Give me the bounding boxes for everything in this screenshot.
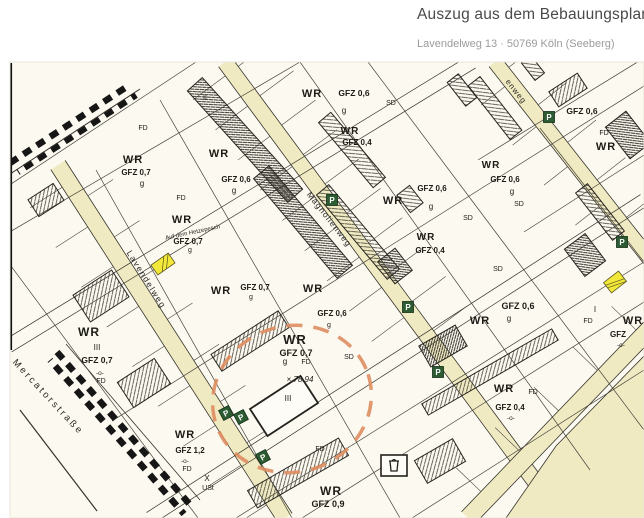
map-label: SD xyxy=(344,354,354,361)
map-label: GFZ 0,6 xyxy=(417,184,447,193)
map-label: GFZ 0,7 xyxy=(81,355,112,365)
map-label: GFZ 0,4 xyxy=(495,403,525,412)
map-label: GFZ 0,6 xyxy=(490,175,520,184)
map-label: -o- xyxy=(617,342,625,349)
map-label: SD xyxy=(386,100,396,107)
map-label: WR xyxy=(175,429,195,441)
map-label: GFZ 1,2 xyxy=(175,446,205,455)
map-label: FD xyxy=(96,378,105,385)
map-label: WR xyxy=(494,383,514,395)
map-label: WR xyxy=(172,214,192,226)
map-label: SD xyxy=(514,201,524,208)
map-label: WR xyxy=(283,332,307,347)
map-label: WR xyxy=(123,154,143,166)
map-label: USt xyxy=(202,485,214,492)
map-label: GFZ 0,4 xyxy=(415,246,445,255)
bebauungsplan-map: PPPPPPPP WRGFZ 0,7gFDIIWRGFZ 0,6gWRGFZ 0… xyxy=(0,0,644,518)
map-label: -o- xyxy=(181,458,189,465)
map-label: GFZ 0,7 xyxy=(173,237,203,246)
container-symbol xyxy=(381,455,407,476)
map-label: SD xyxy=(463,215,473,222)
map-label: g xyxy=(327,322,331,329)
map-label: WR xyxy=(211,285,231,297)
map-label: GFZ 0,6 xyxy=(501,301,534,311)
map-label: I xyxy=(594,305,596,314)
map-label: II xyxy=(203,95,207,102)
parking-symbol: P xyxy=(327,195,338,206)
map-label: III xyxy=(94,343,101,352)
map-label: GFZ 0,4 xyxy=(342,138,372,147)
map-label: WR xyxy=(78,325,100,339)
map-label: g xyxy=(232,186,236,195)
parking-symbol: P xyxy=(403,302,414,313)
map-label: WR xyxy=(341,126,360,137)
parking-symbol: P xyxy=(433,367,444,378)
map-label: FD xyxy=(315,446,324,453)
map-label: X xyxy=(204,474,210,483)
map-label: g xyxy=(140,179,144,188)
map-label: GFZ 0,6 xyxy=(566,106,597,116)
map-label: FD xyxy=(599,130,608,137)
map-label: III xyxy=(285,394,292,403)
map-label: × 78.94 xyxy=(287,375,314,384)
map-label: GFZ xyxy=(610,330,626,339)
map-label: GFZ 0,6 xyxy=(317,309,347,318)
map-label: g xyxy=(249,294,253,301)
parking-letter: P xyxy=(405,303,411,312)
parking-symbol: P xyxy=(617,237,628,248)
map-label: GFZ 0,9 xyxy=(311,499,344,509)
map-label: WR xyxy=(303,283,323,295)
map-label: g xyxy=(429,202,433,211)
map-label: GFZ 0,7 xyxy=(240,283,270,292)
parking-symbol: P xyxy=(544,112,555,123)
map-label: SD xyxy=(493,266,503,273)
map-label: WR xyxy=(383,195,403,207)
map-label: GFZ 0,6 xyxy=(221,175,251,184)
map-label: WR xyxy=(470,315,490,327)
map-label: FD xyxy=(301,359,310,366)
map-label: WR xyxy=(302,88,322,100)
map-label: g xyxy=(507,314,511,323)
parking-letter: P xyxy=(546,113,552,122)
map-label: WR xyxy=(320,484,342,498)
parking-letter: P xyxy=(329,196,335,205)
map-label: FD xyxy=(182,466,191,473)
map-label: -o- xyxy=(507,415,515,422)
map-label: FD xyxy=(528,389,537,396)
parking-letter: P xyxy=(435,368,441,377)
map-label: FD xyxy=(583,318,592,325)
map-label: WR xyxy=(482,160,501,171)
map-label: g xyxy=(510,187,514,196)
map-label: WR xyxy=(596,141,616,153)
parking-letter: P xyxy=(619,238,625,247)
map-label: WR xyxy=(209,148,229,160)
map-label: WR xyxy=(623,315,643,327)
map-label: FD xyxy=(176,195,185,202)
map-label: g xyxy=(283,357,287,366)
map-label: GFZ 0,7 xyxy=(121,168,151,177)
map-label: g xyxy=(188,247,192,254)
map-label: -o- xyxy=(96,370,104,377)
map-label: g xyxy=(342,106,346,115)
map-label: FD xyxy=(138,125,147,132)
map-label: WR xyxy=(417,232,436,243)
map-label: GFZ 0,6 xyxy=(338,88,369,98)
